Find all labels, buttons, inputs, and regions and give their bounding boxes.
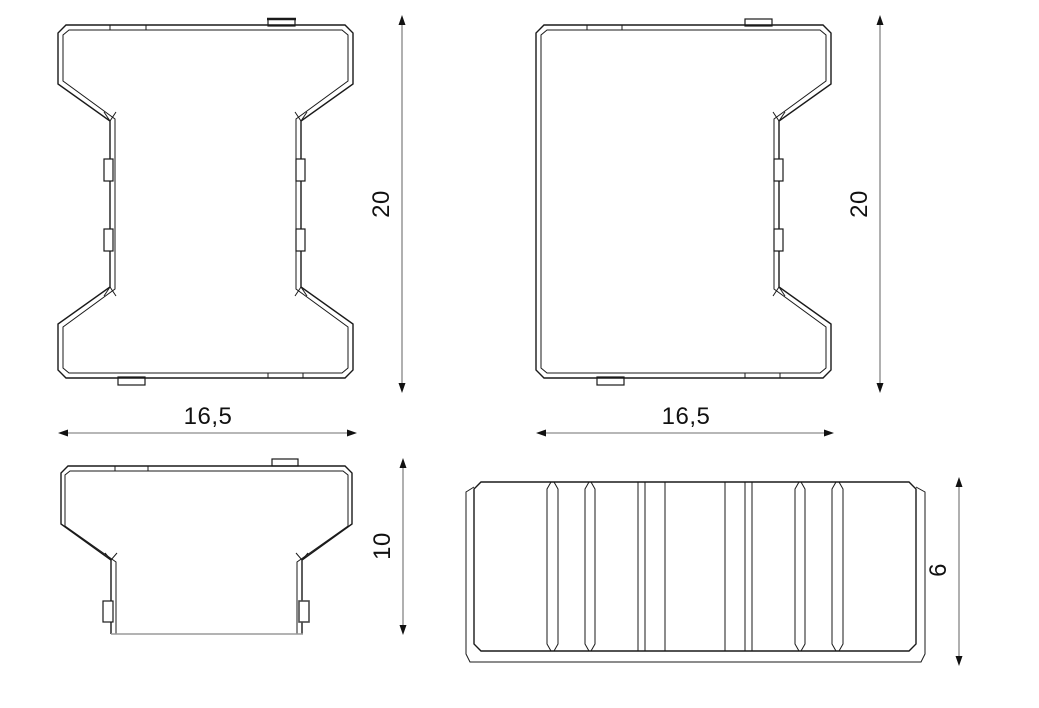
edge-line (585, 482, 589, 651)
plan-view-full-stone (58, 19, 353, 385)
dimension-label: 20 (368, 190, 395, 218)
spacer-nub (296, 159, 305, 181)
bevel-mark (104, 112, 116, 121)
stone-skin-line (466, 487, 925, 662)
arrow-up-icon (399, 15, 406, 25)
spacer-nub (103, 601, 113, 622)
spacer-nub (104, 159, 113, 181)
spacer-nub (104, 229, 113, 251)
arrow-down-icon (877, 383, 884, 393)
dimension-label: 16,5 (662, 403, 711, 430)
bevel-mark (295, 287, 307, 296)
bevel-mark (773, 112, 785, 121)
dimension-label: 10 (369, 532, 396, 560)
dimension-label: 16,5 (184, 403, 233, 430)
stone-outline (536, 25, 831, 378)
dimension-plan-half-width: 16,5 (536, 403, 834, 437)
arrow-right-icon (824, 430, 834, 437)
dimension-label: 20 (846, 190, 873, 218)
stone-bevel-line (63, 30, 348, 373)
waist-edge-lines-left (547, 482, 665, 651)
edge-line (554, 482, 558, 651)
technical-drawing: 20 16,5 20 (0, 0, 1039, 708)
spacer-nub (299, 601, 309, 622)
plan-view-half-stone (536, 19, 831, 385)
top-spacer-tab (272, 459, 298, 466)
stone-outline (58, 25, 353, 378)
arrow-up-icon (956, 477, 963, 487)
dimension-side-height: 6 (925, 477, 963, 666)
arrow-up-icon (400, 458, 407, 468)
dimension-plan-full-width: 16,5 (58, 403, 357, 437)
dimension-front-height: 10 (369, 458, 407, 635)
arrow-up-icon (877, 15, 884, 25)
arrow-left-icon (536, 430, 546, 437)
drawing-canvas: 20 16,5 20 (0, 0, 1039, 708)
edge-line (547, 482, 551, 651)
arrow-down-icon (399, 383, 406, 393)
stone-outline (474, 482, 916, 651)
stone-bevel-line (541, 30, 826, 373)
bevel-mark (295, 112, 307, 121)
edge-line (801, 482, 805, 651)
edge-line (795, 482, 799, 651)
edge-line (591, 482, 595, 651)
edge-line (839, 482, 843, 651)
front-elevation-view (61, 459, 352, 634)
dimension-plan-half-height: 20 (846, 15, 884, 393)
dimension-label: 6 (925, 563, 952, 577)
edge-line (832, 482, 836, 651)
arrow-left-icon (58, 430, 68, 437)
spacer-nub (296, 229, 305, 251)
waist-edge-lines-right (725, 482, 843, 651)
arrow-right-icon (347, 430, 357, 437)
dimension-plan-full-height: 20 (368, 15, 406, 393)
arrow-down-icon (956, 656, 963, 666)
side-elevation-view (466, 482, 925, 662)
spacer-nub (774, 159, 783, 181)
bevel-mark (104, 287, 116, 296)
spacer-nub (774, 229, 783, 251)
arrow-down-icon (400, 625, 407, 635)
bevel-mark (773, 287, 785, 296)
